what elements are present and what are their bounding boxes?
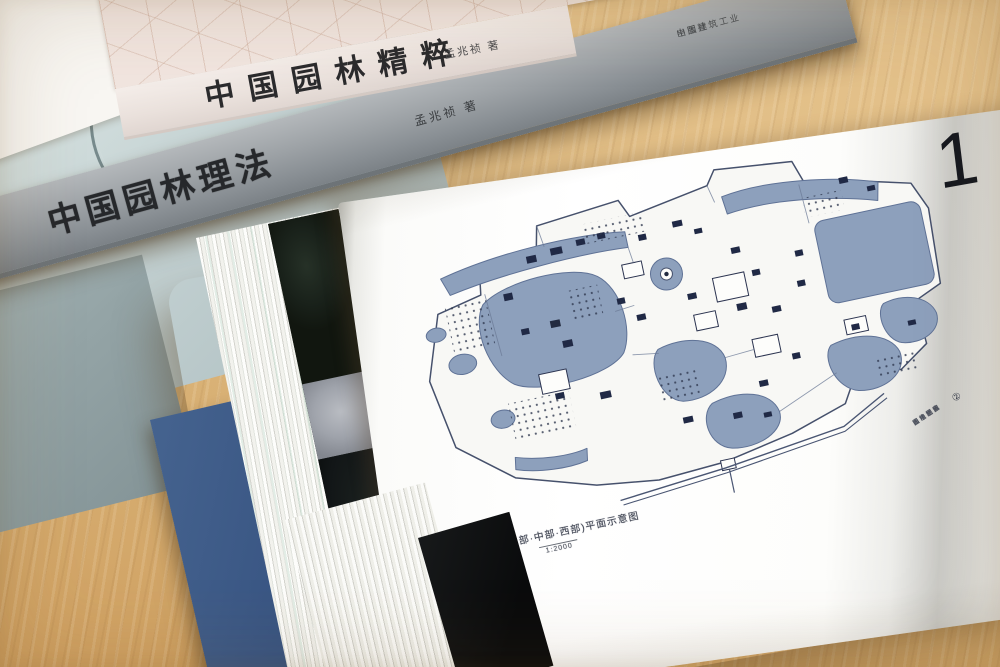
annotation-line: 园中之园 [912, 403, 943, 428]
spine-publisher: 中国建筑工业 出版社 [675, 0, 781, 28]
annotation-line: 因地制宜 [912, 403, 943, 428]
annotation-line: 曲径通幽 [912, 403, 943, 428]
annotation-line: 理法相承 [912, 403, 943, 428]
annotation-marker: ② [950, 391, 964, 405]
spine-author: 孟兆祯 著 [412, 96, 480, 130]
publisher-line-2: 出版社 [675, 20, 710, 40]
chapter-number: 1 [932, 119, 983, 202]
margin-annotation-block: ② 园中之园 理法相承 因地制宜 山水相依 曲径通幽 [912, 360, 1000, 422]
annotation-line: 山水相依 [912, 403, 943, 428]
photo-books-on-desk: 中国园林理法 孟兆祯 著 中国建筑工业 出版社 中国园林精粹 孟兆祯 著 [0, 0, 1000, 667]
map-scale-label: 1:2000 [539, 539, 579, 556]
